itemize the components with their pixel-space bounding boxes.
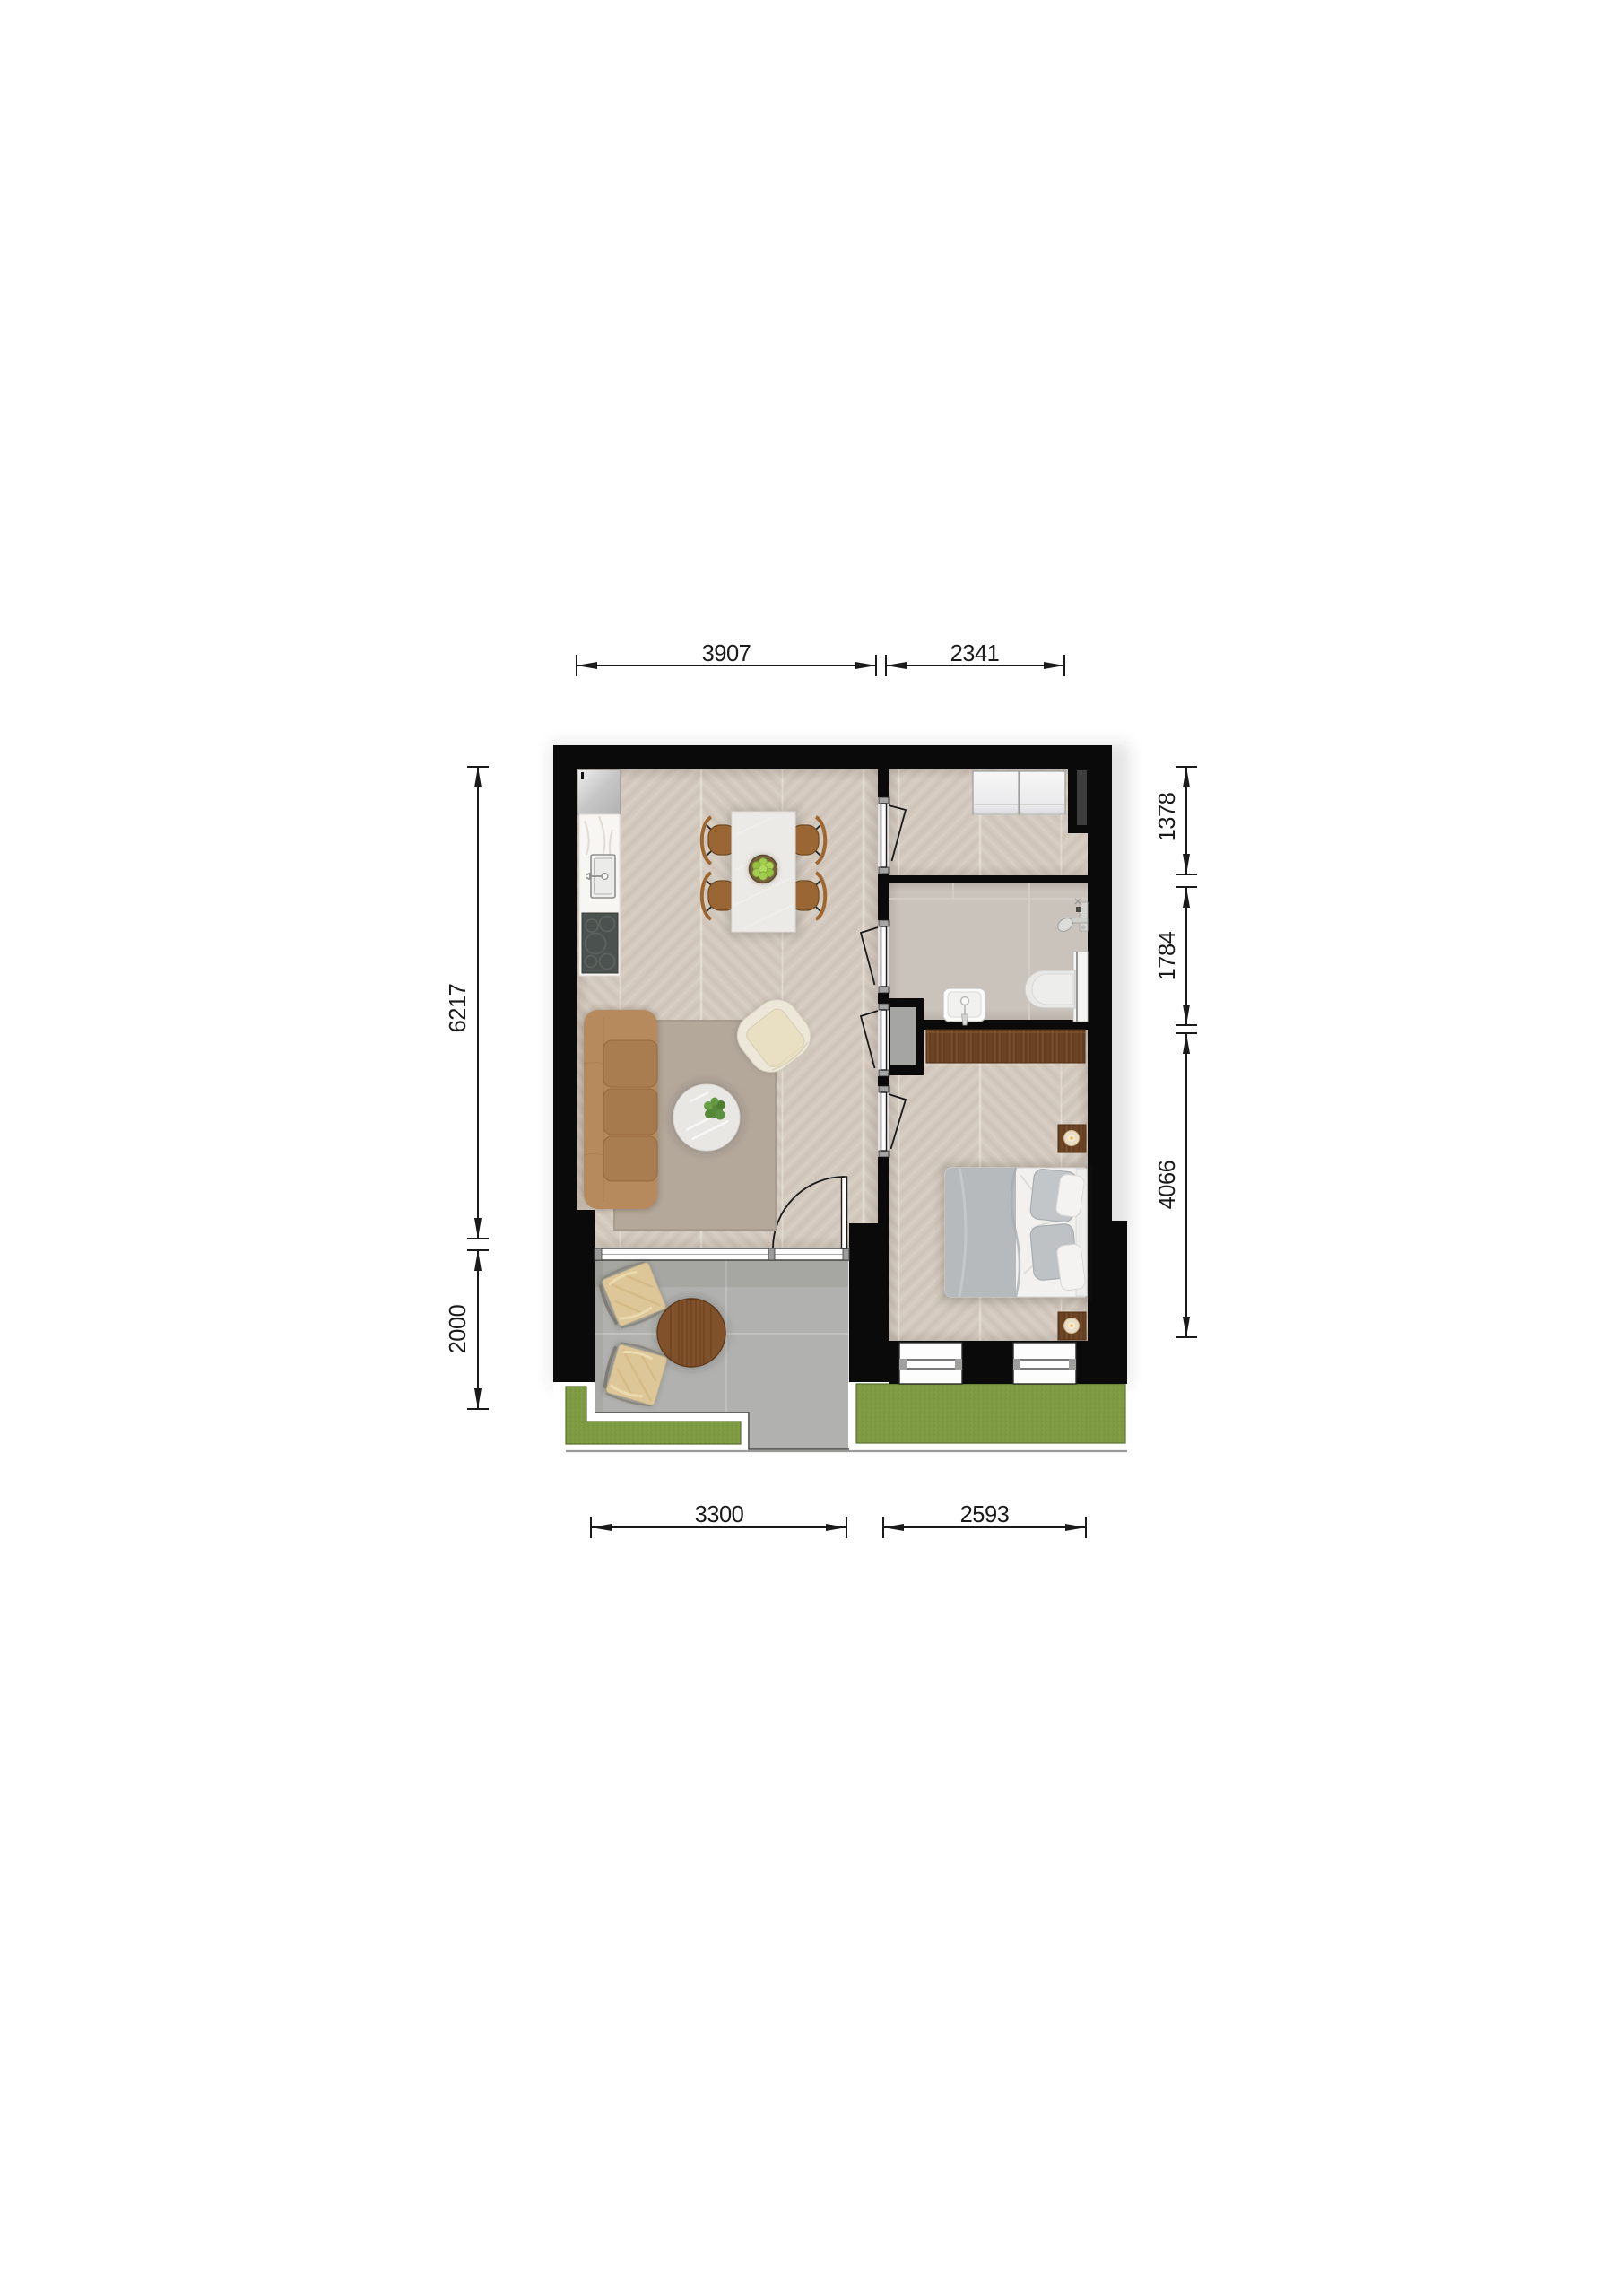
svg-text:2341: 2341 bbox=[950, 641, 1000, 666]
svg-text:1378: 1378 bbox=[1155, 792, 1180, 841]
svg-text:2593: 2593 bbox=[960, 1502, 1010, 1527]
svg-text:6217: 6217 bbox=[446, 984, 471, 1033]
svg-text:1784: 1784 bbox=[1155, 931, 1180, 980]
svg-text:3300: 3300 bbox=[695, 1502, 744, 1527]
svg-text:3907: 3907 bbox=[702, 641, 751, 666]
svg-text:4066: 4066 bbox=[1155, 1160, 1180, 1209]
svg-text:2000: 2000 bbox=[446, 1304, 471, 1353]
